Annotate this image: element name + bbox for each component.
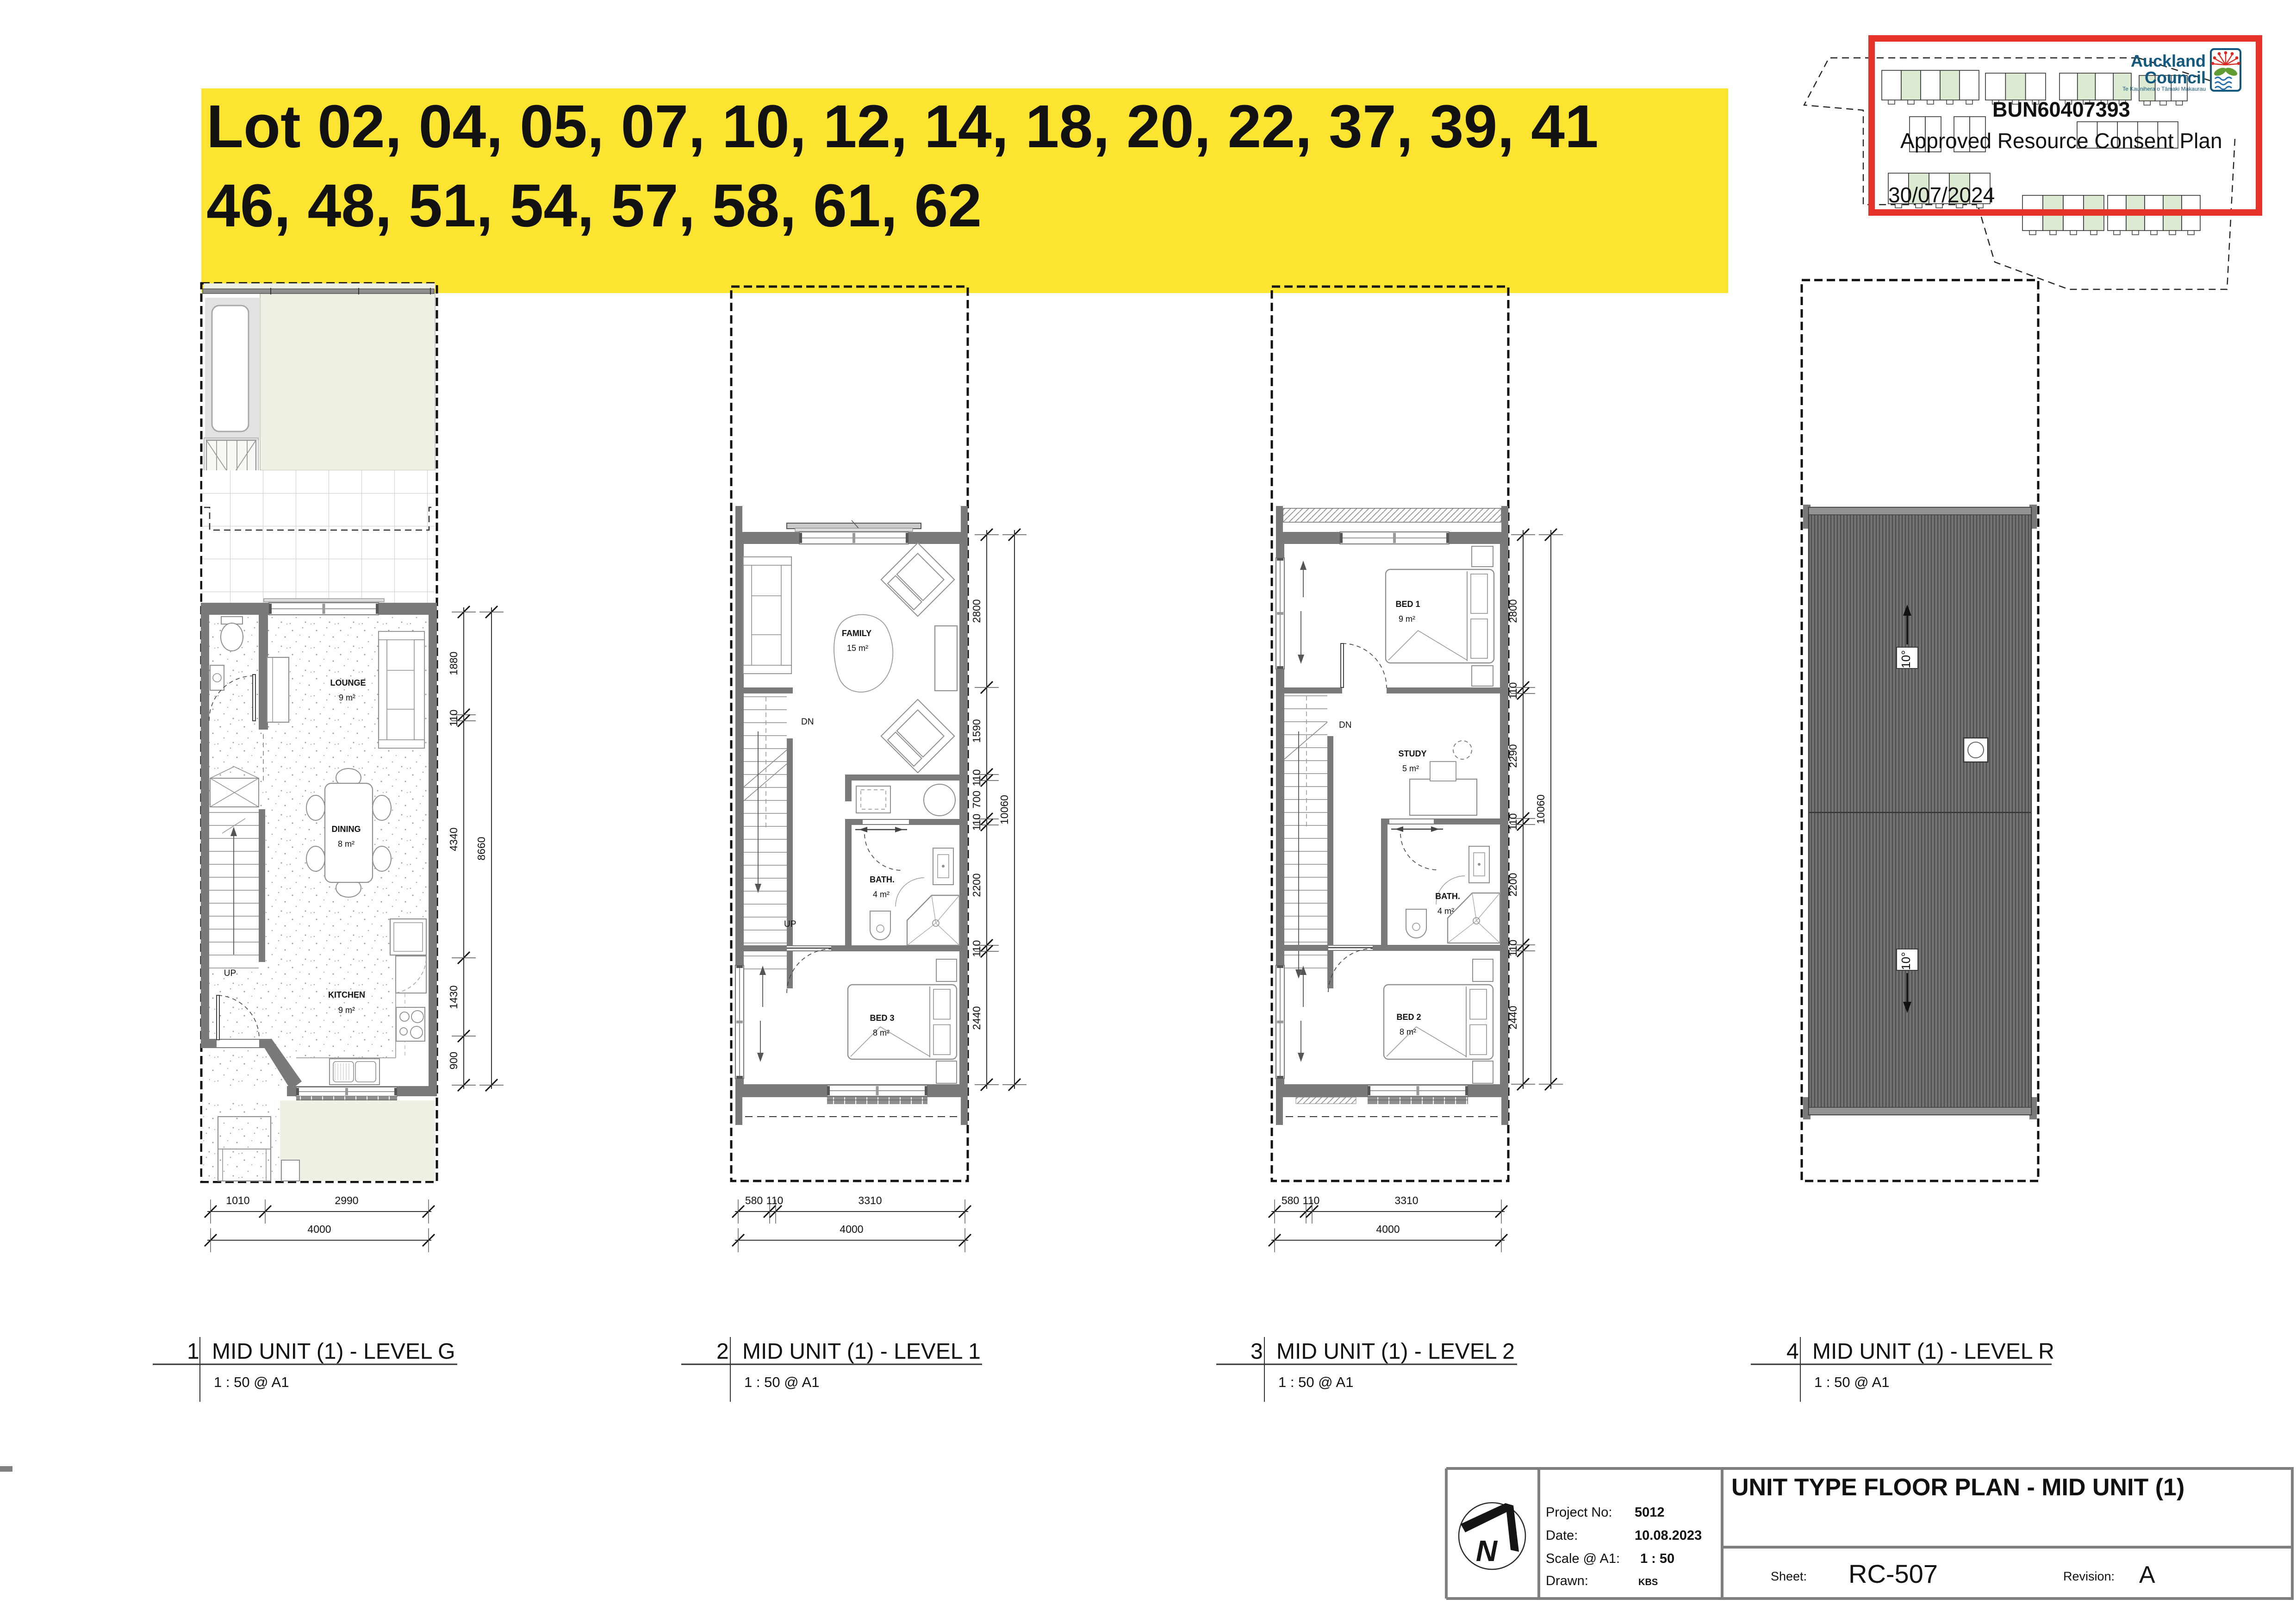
svg-text:4 m²: 4 m² bbox=[873, 890, 890, 899]
svg-text:MID UNIT (1) - LEVEL 1: MID UNIT (1) - LEVEL 1 bbox=[742, 1339, 981, 1364]
svg-text:110: 110 bbox=[448, 710, 460, 727]
svg-text:30/07/2024: 30/07/2024 bbox=[1888, 183, 1995, 207]
svg-text:FAMILY: FAMILY bbox=[842, 629, 871, 638]
svg-text:10°: 10° bbox=[1899, 952, 1913, 970]
svg-text:4 m²: 4 m² bbox=[1437, 906, 1454, 916]
svg-text:15 m²: 15 m² bbox=[847, 643, 868, 653]
svg-text:580: 580 bbox=[745, 1194, 763, 1206]
svg-text:2800: 2800 bbox=[971, 599, 983, 623]
svg-text:1590: 1590 bbox=[971, 719, 983, 743]
svg-text:2440: 2440 bbox=[971, 1006, 983, 1030]
svg-text:110: 110 bbox=[1303, 1194, 1320, 1206]
svg-text:RC-507: RC-507 bbox=[1848, 1559, 1938, 1588]
svg-text:8 m²: 8 m² bbox=[873, 1028, 890, 1037]
svg-text:Date:: Date: bbox=[1546, 1528, 1578, 1543]
svg-text:110: 110 bbox=[971, 940, 983, 957]
svg-text:4000: 4000 bbox=[307, 1223, 331, 1235]
svg-text:110: 110 bbox=[1507, 813, 1519, 831]
svg-text:1 : 50 @ A1: 1 : 50 @ A1 bbox=[1278, 1374, 1353, 1390]
svg-text:Revision:: Revision: bbox=[2063, 1569, 2115, 1583]
svg-text:Drawn:: Drawn: bbox=[1546, 1574, 1588, 1588]
svg-text:UP: UP bbox=[784, 919, 796, 929]
svg-text:3: 3 bbox=[1251, 1339, 1263, 1364]
svg-text:KITCHEN: KITCHEN bbox=[328, 990, 365, 999]
svg-text:9 m²: 9 m² bbox=[338, 1006, 355, 1015]
svg-text:110: 110 bbox=[971, 814, 983, 831]
svg-text:3310: 3310 bbox=[858, 1194, 882, 1206]
svg-text:BATH.: BATH. bbox=[1435, 892, 1460, 901]
svg-text:8 m²: 8 m² bbox=[1400, 1027, 1416, 1037]
svg-text:1880: 1880 bbox=[448, 651, 460, 675]
svg-text:2800: 2800 bbox=[1507, 599, 1519, 623]
svg-text:4340: 4340 bbox=[448, 827, 460, 851]
svg-text:4000: 4000 bbox=[1376, 1223, 1400, 1235]
svg-text:Scale @ A1:: Scale @ A1: bbox=[1546, 1551, 1620, 1566]
svg-text:MID UNIT (1) - LEVEL G: MID UNIT (1) - LEVEL G bbox=[212, 1339, 455, 1364]
svg-text:9 m²: 9 m² bbox=[1399, 614, 1415, 624]
svg-text:1010: 1010 bbox=[226, 1194, 249, 1206]
svg-text:STUDY: STUDY bbox=[1398, 749, 1426, 758]
svg-text:4000: 4000 bbox=[840, 1223, 863, 1235]
svg-text:2200: 2200 bbox=[1507, 873, 1519, 896]
svg-text:BATH.: BATH. bbox=[870, 875, 895, 884]
svg-text:10.08.2023: 10.08.2023 bbox=[1635, 1528, 1702, 1543]
svg-text:46, 48, 51, 54, 57, 58, 61, 62: 46, 48, 51, 54, 57, 58, 61, 62 bbox=[206, 171, 982, 239]
svg-text:2: 2 bbox=[716, 1339, 729, 1364]
svg-text:Lot 02, 04, 05, 07, 10, 12, 14: Lot 02, 04, 05, 07, 10, 12, 14, 18, 20, … bbox=[206, 92, 1599, 160]
svg-text:Te Kaunihera o Tāmaki Makaurau: Te Kaunihera o Tāmaki Makaurau bbox=[2122, 86, 2206, 92]
svg-text:10°: 10° bbox=[1899, 650, 1913, 668]
svg-text:8660: 8660 bbox=[475, 837, 487, 860]
svg-text:110: 110 bbox=[1507, 940, 1519, 957]
svg-text:Council: Council bbox=[2145, 68, 2206, 87]
svg-text:BUN60407393: BUN60407393 bbox=[1992, 98, 2130, 121]
svg-text:3310: 3310 bbox=[1394, 1194, 1418, 1206]
svg-text:1430: 1430 bbox=[448, 985, 460, 1009]
svg-text:Project No:: Project No: bbox=[1546, 1505, 1612, 1520]
svg-text:Auckland: Auckland bbox=[2131, 51, 2206, 70]
svg-text:BED 1: BED 1 bbox=[1395, 600, 1420, 609]
svg-text:UNIT TYPE FLOOR PLAN - MID UNI: UNIT TYPE FLOOR PLAN - MID UNIT (1) bbox=[1731, 1474, 2184, 1501]
svg-text:110: 110 bbox=[971, 769, 983, 787]
svg-text:DINING: DINING bbox=[332, 824, 361, 834]
svg-text:LOUNGE: LOUNGE bbox=[330, 678, 366, 687]
svg-text:10060: 10060 bbox=[998, 795, 1010, 824]
svg-text:1 : 50 @ A1: 1 : 50 @ A1 bbox=[744, 1374, 819, 1390]
svg-text:1: 1 bbox=[187, 1339, 199, 1364]
svg-text:2290: 2290 bbox=[1507, 744, 1519, 768]
svg-text:700: 700 bbox=[971, 791, 983, 808]
svg-text:110: 110 bbox=[766, 1194, 784, 1206]
svg-text:1 : 50 @ A1: 1 : 50 @ A1 bbox=[1814, 1374, 1889, 1390]
svg-text:BED 2: BED 2 bbox=[1396, 1012, 1421, 1022]
svg-text:1 : 50: 1 : 50 bbox=[1640, 1551, 1674, 1566]
svg-text:10060: 10060 bbox=[1535, 794, 1547, 824]
svg-text:8 m²: 8 m² bbox=[338, 839, 355, 849]
svg-text:9 m²: 9 m² bbox=[339, 693, 355, 702]
svg-text:Approved Resource Consent Plan: Approved Resource Consent Plan bbox=[1900, 129, 2222, 153]
svg-text:MID UNIT (1) - LEVEL 2: MID UNIT (1) - LEVEL 2 bbox=[1276, 1339, 1515, 1364]
svg-text:DN: DN bbox=[801, 717, 814, 727]
svg-text:1 : 50 @ A1: 1 : 50 @ A1 bbox=[214, 1374, 289, 1390]
svg-text:KBS: KBS bbox=[1638, 1577, 1658, 1587]
svg-text:BED 3: BED 3 bbox=[870, 1013, 894, 1023]
svg-text:110: 110 bbox=[1507, 682, 1519, 700]
svg-text:2200: 2200 bbox=[971, 873, 983, 897]
svg-text:2440: 2440 bbox=[1507, 1006, 1519, 1029]
svg-text:UP: UP bbox=[224, 968, 236, 978]
svg-text:2990: 2990 bbox=[335, 1194, 358, 1206]
svg-text:5012: 5012 bbox=[1635, 1505, 1665, 1520]
svg-text:A: A bbox=[2139, 1562, 2155, 1588]
svg-text:DN: DN bbox=[1339, 720, 1351, 730]
svg-text:580: 580 bbox=[1282, 1194, 1299, 1206]
svg-text:900: 900 bbox=[448, 1052, 460, 1069]
svg-text:5 m²: 5 m² bbox=[1402, 764, 1419, 773]
svg-text:Sheet:: Sheet: bbox=[1771, 1569, 1807, 1583]
svg-text:N: N bbox=[1476, 1534, 1498, 1568]
svg-text:MID UNIT (1) - LEVEL R: MID UNIT (1) - LEVEL R bbox=[1812, 1339, 2054, 1364]
svg-text:4: 4 bbox=[1786, 1339, 1799, 1364]
